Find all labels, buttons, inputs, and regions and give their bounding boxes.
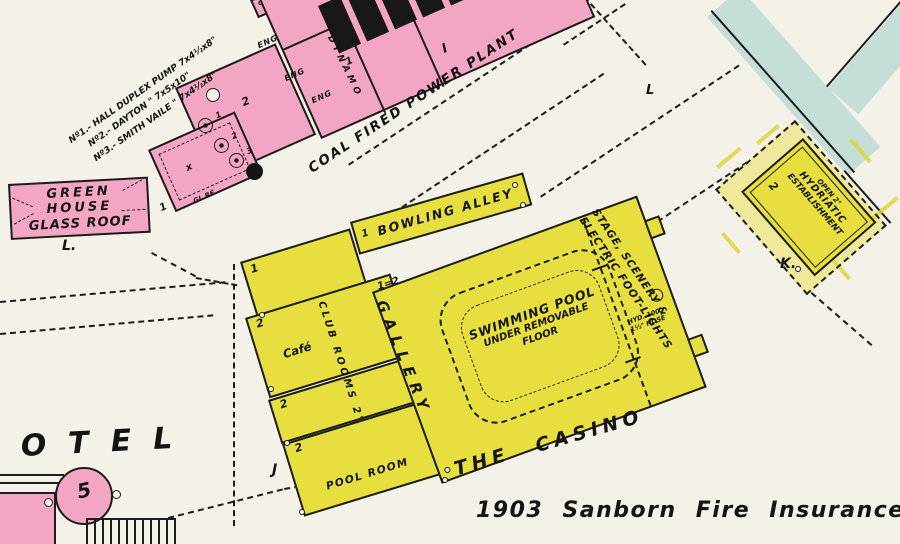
greenhouse-line: GLASS ROOF [28,213,131,234]
hotel-porch-lines [0,474,64,484]
road-dash-vertical [233,264,235,526]
corner-dot [268,386,274,392]
sanborn-map: OIL ENG ENG ENG DYNAMO 2 GL RF x 1 I 1 1… [0,0,900,544]
machine-circle [206,88,220,102]
map-caption: 1903 Sanborn Fire Insurance Map [476,498,900,523]
pump-symbol [198,118,213,133]
corner-dot [284,440,290,446]
block-mark-J: J [272,462,277,478]
road-corner-mark: L [646,84,654,99]
road-dash [540,65,740,198]
story-mark: 1 [249,262,260,276]
stage-tab [687,334,709,358]
road-dash [151,252,196,277]
road-dash [0,281,225,303]
road-dash [168,488,283,518]
corner-dot [44,498,53,507]
bowling-alley-label: BOWLING ALLEY [376,186,515,239]
corner-dot [512,182,518,188]
corner-dot [299,509,305,515]
hotel-tower: 5 [55,467,113,525]
story-mark: 2 [255,317,266,331]
story-mark: 1 [360,227,370,240]
story-mark: 2 [293,441,304,455]
roof-dash [122,179,142,191]
corner-dot [442,477,448,483]
pump-symbol [214,138,229,153]
smokestack [246,163,263,180]
roof-dash [12,198,33,208]
hotel-name-partial: OTEL [20,421,195,465]
story-mark: 2 [278,398,289,412]
yellow-hatch [721,232,741,254]
corner-dot [520,202,526,208]
hotel-veranda-hatch [86,518,176,544]
corner-dot [795,266,801,272]
boardwalk-band [828,3,900,114]
corner-dot [259,312,265,318]
greenhouse: GREEN HOUSE GLASS ROOF [8,177,151,240]
pump-symbol [229,153,244,168]
roof-dash [122,209,146,211]
block-mark-L: L. [62,238,76,254]
corner-dot [444,466,452,474]
pool-room-label: POOL ROOM [325,456,411,493]
wall-tick: 1 [158,201,169,214]
road-dash [811,292,873,346]
corner-dot [112,490,121,499]
block-mark-K: K. [780,256,796,272]
road-dash [0,314,213,335]
cafe-label: Café [282,340,314,361]
tower-number: 5 [75,478,93,503]
